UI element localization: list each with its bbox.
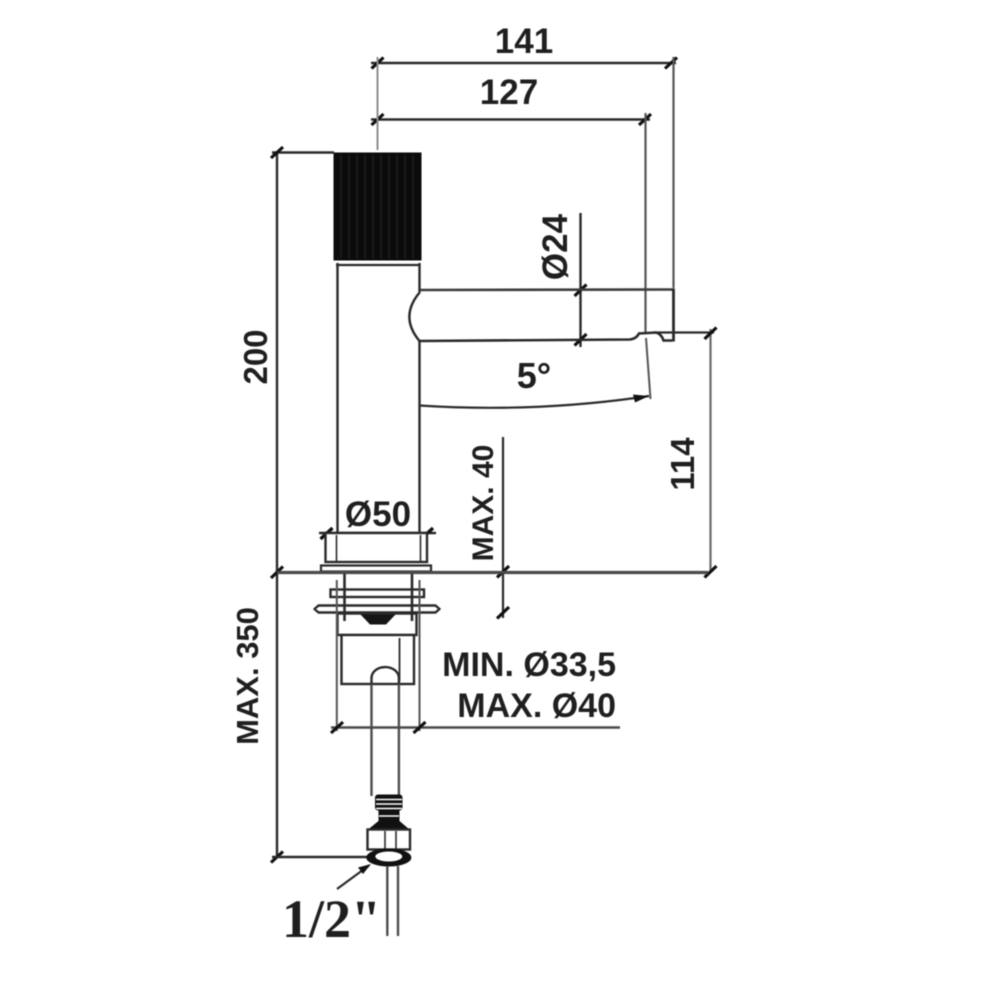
svg-text:MAX. 40: MAX. 40 [467, 445, 500, 562]
svg-text:5°: 5° [517, 355, 551, 396]
svg-text:Ø24: Ø24 [536, 213, 575, 280]
svg-text:1/2": 1/2" [282, 889, 381, 949]
svg-text:MAX. Ø40: MAX. Ø40 [457, 687, 616, 725]
svg-text:MIN. Ø33,5: MIN. Ø33,5 [442, 646, 616, 684]
svg-text:127: 127 [480, 73, 538, 112]
svg-text:200: 200 [237, 329, 274, 384]
svg-text:141: 141 [495, 22, 553, 61]
svg-text:114: 114 [664, 437, 701, 491]
svg-text:Ø50: Ø50 [345, 495, 411, 534]
svg-text:MAX. 350: MAX. 350 [230, 607, 265, 745]
